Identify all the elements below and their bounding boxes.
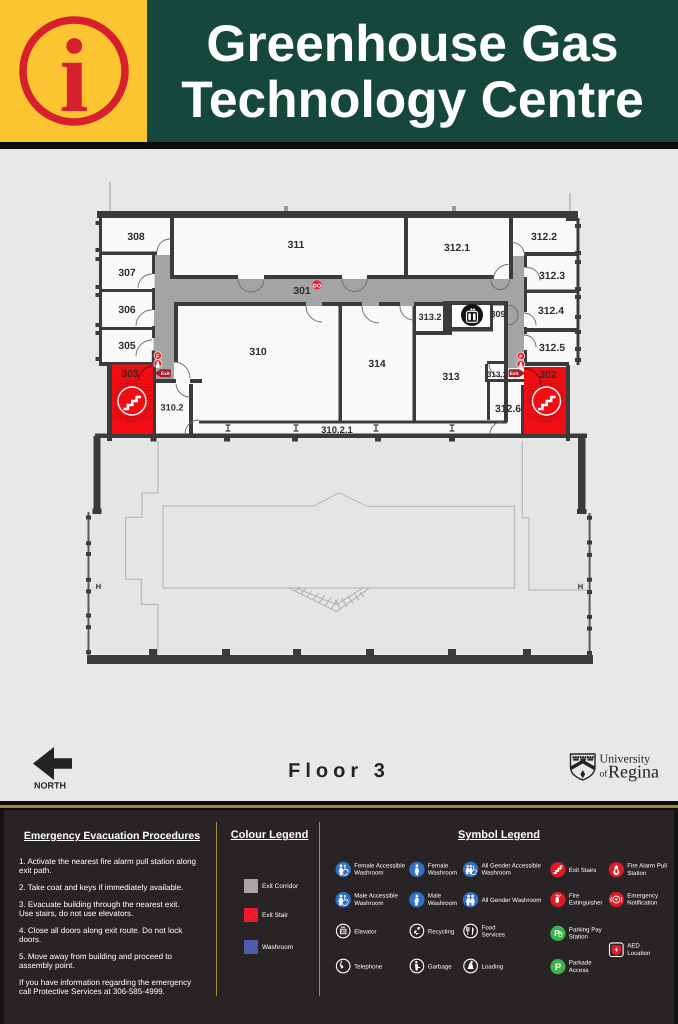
svg-text:All Gender Washroom: All Gender Washroom [482,897,542,904]
svg-text:Access: Access [569,967,589,974]
svg-text:Parkade: Parkade [569,960,592,967]
svg-text:312.3: 312.3 [539,271,565,282]
svg-text:Washroom: Washroom [354,900,383,907]
svg-text:Notification: Notification [627,900,657,907]
svg-text:Parking Pay: Parking Pay [569,926,603,933]
svg-text:314: 314 [368,359,386,370]
svg-text:312.5: 312.5 [539,343,565,354]
svg-text:313: 313 [442,372,460,383]
svg-text:312.4: 312.4 [538,306,564,317]
svg-text:312.1: 312.1 [444,243,470,254]
svg-text:Loading: Loading [482,963,504,970]
svg-text:Extinguisher: Extinguisher [569,900,603,907]
svg-text:H: H [96,582,101,591]
svg-text:Regina: Regina [608,762,659,782]
svg-text:Exit Stairs: Exit Stairs [569,867,596,874]
svg-text:Washroom: Washroom [428,900,457,907]
svg-text:313.2: 313.2 [419,312,442,322]
svg-text:NORTH: NORTH [34,781,66,791]
svg-text:Telephone: Telephone [354,963,383,970]
svg-text:305: 305 [118,341,136,352]
svg-text:DO: DO [313,283,322,289]
svg-text:of: of [600,770,609,780]
svg-text:Elevator: Elevator [354,928,376,935]
svg-text:AED: AED [627,943,640,950]
svg-text:Services: Services [482,932,505,939]
svg-text:312.6: 312.6 [495,404,521,415]
svg-text:308: 308 [127,232,145,243]
svg-text:310: 310 [249,347,267,358]
svg-text:Male Accessible: Male Accessible [354,893,398,900]
svg-text:Male: Male [428,893,442,900]
svg-text:Fire: Fire [569,893,580,900]
svg-text:312.2: 312.2 [531,232,557,243]
svg-text:302: 302 [539,370,557,381]
svg-text:Garbage: Garbage [428,963,452,970]
svg-text:Exit: Exit [161,371,170,377]
svg-text:Location: Location [627,950,650,957]
svg-text:Washroom: Washroom [354,870,383,877]
svg-text:Station: Station [627,870,646,877]
svg-text:Washroom: Washroom [428,870,457,877]
svg-text:Fire Alarm Pull: Fire Alarm Pull [627,863,667,870]
svg-text:Washroom: Washroom [482,870,511,877]
svg-text:306: 306 [118,305,136,316]
svg-text:Recycling: Recycling [428,928,454,935]
svg-text:311: 311 [288,240,305,251]
svg-text:313.1: 313.1 [487,370,508,379]
svg-text:P: P [555,962,562,973]
svg-text:309: 309 [490,309,505,319]
svg-text:307: 307 [118,268,136,279]
svg-text:Exit: Exit [510,371,519,377]
svg-text:All Gender Accessible: All Gender Accessible [482,862,542,869]
svg-text:Emergency: Emergency [627,893,659,900]
svg-text:Female Accessible: Female Accessible [354,862,405,869]
svg-text:301: 301 [293,286,311,297]
svg-text:310.2.1: 310.2.1 [321,425,353,436]
svg-text:Station: Station [569,934,588,941]
svg-text:Female: Female [428,862,449,869]
svg-text:310.2: 310.2 [161,403,184,413]
svg-text:Food: Food [482,924,496,931]
svg-text:H: H [578,582,583,591]
svg-text:303: 303 [121,369,139,380]
